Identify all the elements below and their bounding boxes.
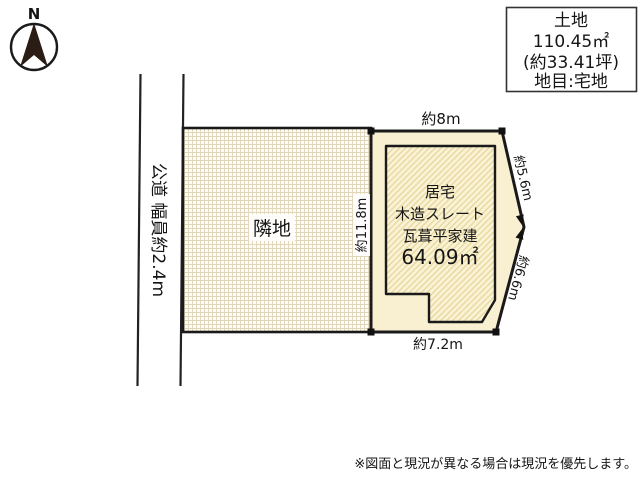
building-area-label: 64.09㎡ [401, 245, 478, 269]
plot-corner-marker-top-left [368, 128, 375, 135]
dim-left-label: 約11.8m [355, 198, 370, 253]
public-road: 公道 幅員約2.4m [138, 74, 184, 386]
land-info-area-tsubo: (約33.41坪) [523, 53, 619, 73]
dim-bottom-label: 約7.2m [413, 337, 463, 353]
road-label: 公道 幅員約2.4m [148, 163, 168, 297]
building-structure-line1: 木造スレート [395, 205, 485, 223]
land-info-box: 土地 110.45㎡ (約33.41坪) 地目:宅地 [507, 8, 637, 93]
plot-corner-marker-bottom-right [493, 329, 500, 336]
neighbor-land: 隣地 [183, 128, 371, 332]
road-line-left [138, 74, 141, 386]
plot-corner-marker-bottom-left [368, 329, 375, 336]
building-type-label: 居宅 [425, 183, 455, 201]
north-compass: N [11, 5, 57, 70]
neighbor-label: 隣地 [253, 218, 291, 240]
land-info-area-sqm: 110.45㎡ [533, 32, 609, 52]
plot-plan-diagram: N 土地 110.45㎡ (約33.41坪) 地目:宅地 公道 幅員約2.4m … [0, 0, 640, 480]
footer-note: ※図面と現況が異なる場合は現況を優先します。 [354, 457, 637, 472]
compass-needle-icon [20, 23, 48, 67]
plot-corner-marker-top-right [499, 128, 506, 135]
dim-top-label: 約8m [421, 110, 460, 128]
land-info-title: 土地 [554, 11, 588, 31]
land-info-category: 地目:宅地 [534, 72, 608, 92]
compass-north-label: N [28, 5, 41, 23]
building-structure-line2: 瓦葺平家建 [402, 227, 477, 245]
diagram-canvas: N 土地 110.45㎡ (約33.41坪) 地目:宅地 公道 幅員約2.4m … [0, 0, 640, 480]
